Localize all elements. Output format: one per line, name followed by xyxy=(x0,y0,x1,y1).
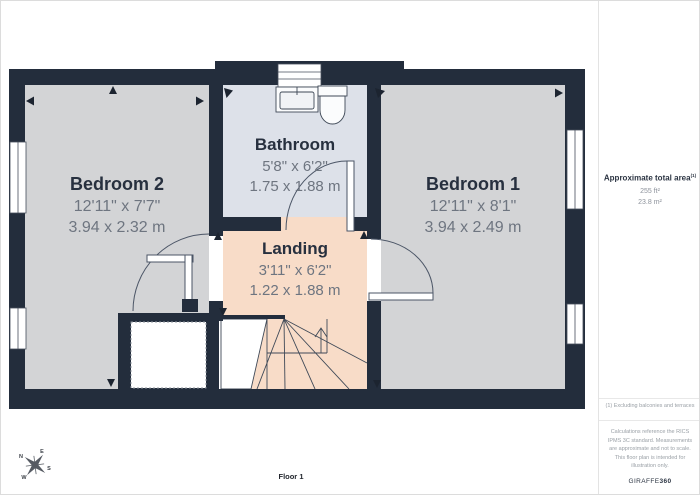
window-right-2 xyxy=(567,304,583,344)
info-sidebar: Approximate total area(1) 255 ft² 23.8 m… xyxy=(598,1,700,495)
disclaimer-text: Calculations reference the RICS IPMS 3C … xyxy=(606,428,694,471)
total-area-metric: 23.8 m² xyxy=(599,199,700,206)
floors xyxy=(25,85,565,391)
brand-logo: GIRAFFE360 xyxy=(606,478,694,485)
floor-label: Floor 1 xyxy=(246,472,336,481)
disclaimer-section: Calculations reference the RICS IPMS 3C … xyxy=(599,420,700,495)
under-stairs-store xyxy=(118,313,219,391)
footnote-text: (1) Excluding balconies and terraces xyxy=(605,403,695,411)
window-left-1 xyxy=(10,142,26,213)
total-area-block: Approximate total area(1) 255 ft² 23.8 m… xyxy=(599,173,700,206)
window-bathroom xyxy=(278,64,321,87)
sink-icon xyxy=(276,87,318,112)
compass-w: W xyxy=(21,475,27,481)
compass-n: N xyxy=(19,454,23,460)
total-area-title: Approximate total area(1) xyxy=(599,173,700,184)
floorplan-page: N E S W Bedroom 2 12'11" x 7'7" 3.94 x 2… xyxy=(0,0,700,495)
compass-rose-icon: N E S W xyxy=(17,447,53,483)
compass-s: S xyxy=(47,466,51,472)
window-right-1 xyxy=(567,130,583,209)
toilet-icon xyxy=(318,86,347,124)
window-left-2 xyxy=(10,308,26,349)
total-area-title-text: Approximate total area xyxy=(604,174,691,183)
total-area-imperial: 255 ft² xyxy=(599,188,700,195)
footnote-section: (1) Excluding balconies and terraces xyxy=(599,398,700,411)
brand-suffix: 360 xyxy=(659,478,671,485)
total-area-superscript: (1) xyxy=(691,173,697,178)
floor-plan: N E S W xyxy=(1,1,598,495)
compass-e: E xyxy=(40,449,44,455)
brand-name: GIRAFFE xyxy=(628,478,659,485)
